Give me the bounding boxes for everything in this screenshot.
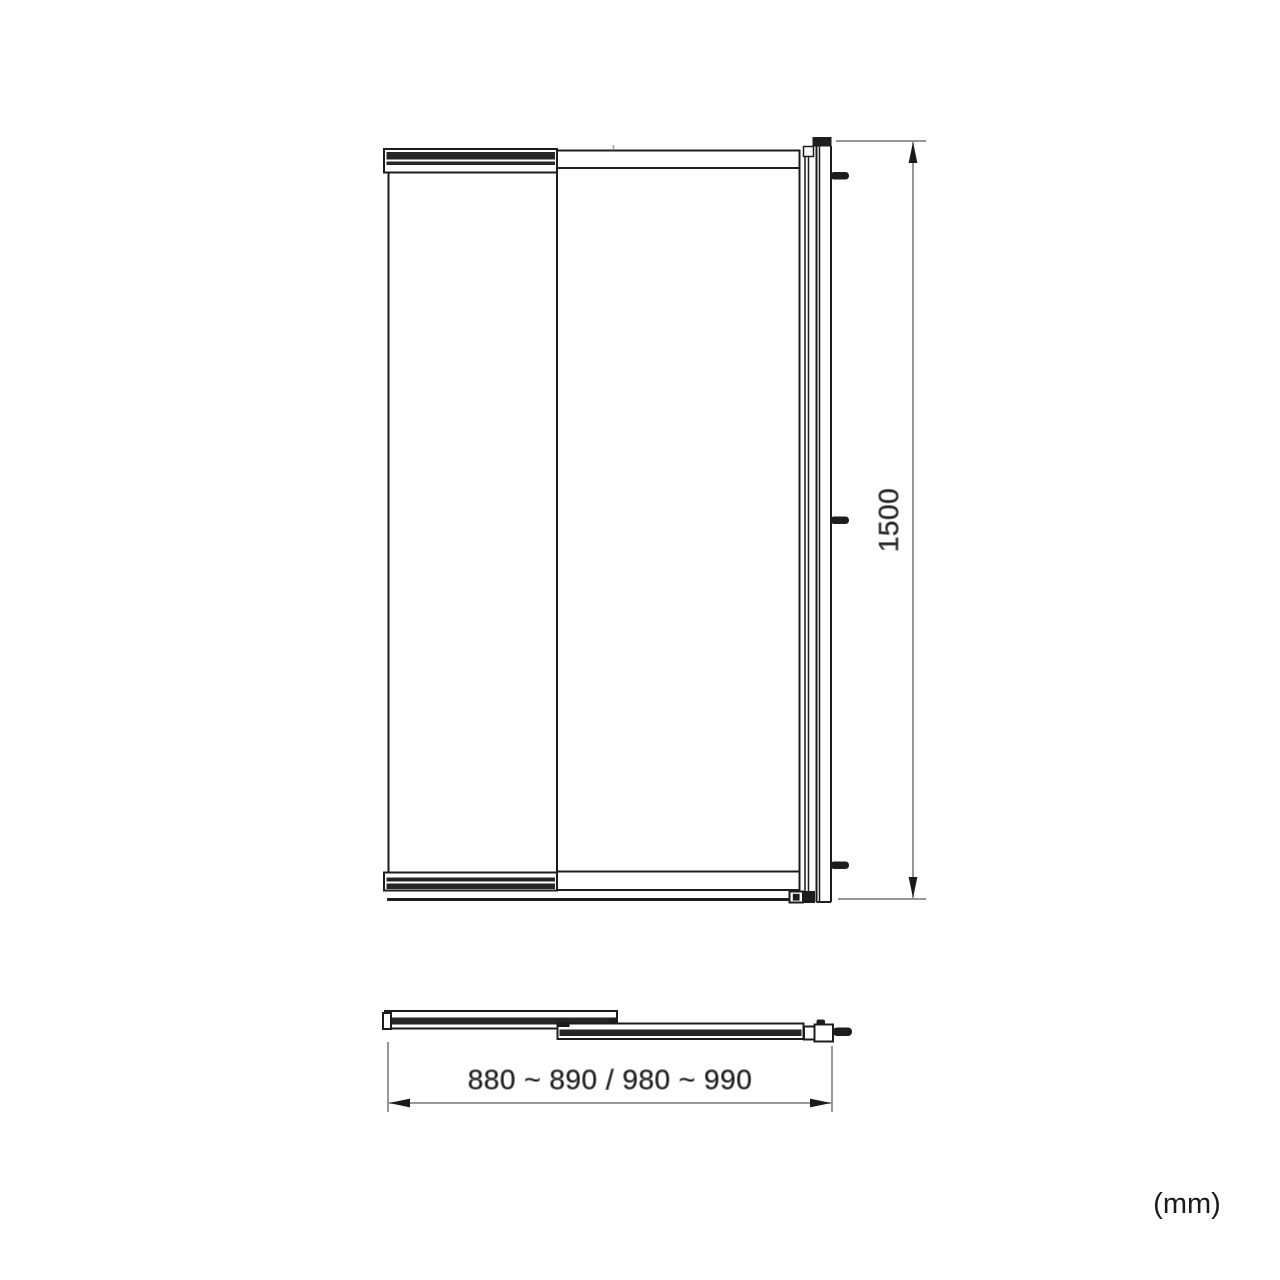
left-panel-bottom-rail-band	[387, 878, 556, 882]
foot-block	[803, 891, 816, 903]
left-panel-top-rail-band	[387, 162, 556, 166]
plan-right-panel-bar	[558, 1022, 804, 1039]
plan-right-panel-glass-band	[560, 1030, 802, 1037]
plan-profile-lug	[817, 1020, 826, 1026]
right-panel-top-rail	[557, 151, 800, 169]
plan-left-end-cap	[383, 1013, 391, 1029]
units-label: (mm)	[1153, 1188, 1221, 1220]
plan-wall-anchor	[833, 1028, 852, 1037]
foot-insert	[793, 894, 800, 901]
technical-drawing: 880 ~ 890 / 980 ~ 990 1500 (mm)	[0, 0, 1280, 1280]
plan-profile-block	[815, 1025, 834, 1042]
wall-bracket-middle	[831, 517, 850, 525]
left-panel-top-rail-band	[387, 152, 556, 160]
channel-top-step	[804, 147, 814, 157]
height-dimension-label: 1500	[873, 488, 904, 552]
wall-bracket-bottom	[831, 862, 850, 870]
plan-overlap-step	[558, 1022, 570, 1027]
bottom-guide-foot	[790, 891, 816, 903]
left-panel-bottom-rail-band	[387, 884, 556, 890]
wall-bracket-top	[831, 172, 850, 180]
width-dimension-label: 880 ~ 890 / 980 ~ 990	[468, 1064, 753, 1095]
drawing-canvas: 880 ~ 890 / 980 ~ 990 1500 (mm)	[0, 0, 1280, 1280]
right-panel-bottom-rail	[557, 872, 800, 891]
plan-profile-block	[804, 1027, 815, 1040]
post-top-cap	[813, 137, 832, 147]
